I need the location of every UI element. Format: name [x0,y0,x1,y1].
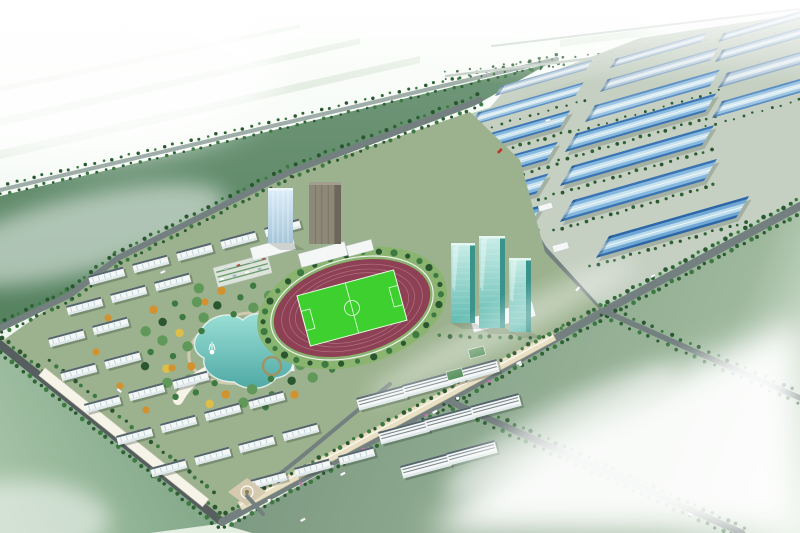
tree-icon [749,223,753,227]
highrise-shade [470,243,475,323]
tree-icon [290,472,293,475]
flower-tree-icon [299,482,302,485]
tree-icon [162,240,165,243]
tree-icon [283,494,286,497]
tree-icon [211,215,215,219]
tree-icon [705,125,707,127]
tree-icon [625,289,630,294]
tree-icon [769,213,773,217]
tree-icon [521,347,524,350]
tree-icon [95,171,98,174]
tree-icon [779,105,781,107]
tree-icon [688,237,691,240]
tree-icon [148,158,151,161]
tree-icon [162,451,165,454]
tree-icon [543,137,547,141]
tree-icon [367,429,371,433]
tree-icon [365,146,369,150]
tree-icon [576,101,578,103]
flower-tree-icon [487,380,490,383]
tree-icon [179,219,182,222]
tree-icon [604,304,607,307]
tree-icon [92,427,96,431]
tree-icon [373,105,377,109]
tree-icon [316,475,320,479]
tree-icon [69,407,73,411]
tree-icon [324,150,328,154]
tree-icon [619,322,623,326]
tree-icon [130,162,133,165]
highrise-roof [479,236,505,239]
tree-icon [475,92,479,96]
tree-icon [217,525,221,529]
autumn-tree-icon [92,348,99,355]
tree-icon [118,261,121,264]
tree-icon [423,114,426,117]
tree-icon [402,410,407,415]
tree-icon [38,302,41,305]
tree-icon [327,160,331,164]
tree-icon [212,490,216,494]
tree-icon [615,142,619,146]
tree-icon [236,190,240,194]
tree-icon [214,201,218,205]
tree-icon [50,307,54,311]
tree-icon [648,134,651,137]
tree-icon [469,96,472,99]
tree-icon [442,403,445,406]
tree-icon [694,152,697,155]
tree-icon [126,258,130,262]
tree-icon [468,394,471,397]
tree-icon [179,314,185,320]
tree-icon [579,315,582,318]
tree-icon [557,159,560,162]
tree-icon [52,181,55,184]
tree-icon [233,204,237,208]
tree-icon [380,422,385,427]
tree-icon [173,151,176,154]
tree-icon [336,464,340,468]
tree-icon [656,339,659,342]
tree-icon [87,421,91,425]
tree-icon [397,135,401,139]
tree-icon [391,100,394,103]
tree-icon [40,384,44,388]
tree-icon [103,435,107,439]
tree-icon [15,364,19,368]
tree-icon [121,248,125,252]
tree-icon [691,254,695,258]
tree-icon [465,110,469,114]
tree-icon [625,209,628,212]
tree-icon [304,483,307,486]
tree-icon [518,143,522,147]
tree-icon [128,153,131,156]
tree-icon [649,202,652,205]
tree-icon [578,329,582,333]
tree-icon [505,418,509,422]
tree-icon [743,242,746,245]
autumn-tree-icon [201,298,208,305]
tree-icon [575,154,578,157]
tree-icon [680,193,684,197]
tree-icon [313,120,316,123]
tree-icon [537,113,539,115]
tree-icon [427,124,430,127]
tree-icon [483,421,487,425]
tree-icon [512,146,515,149]
tree-icon [3,318,7,322]
tree-icon [29,318,33,322]
tree-icon [30,304,34,308]
tree-icon [67,168,70,171]
tree-icon [243,136,247,140]
tree-icon [74,411,78,415]
tree-icon [252,134,255,137]
tree-icon [189,224,193,228]
tree-icon [454,101,458,105]
tree-icon [795,213,799,217]
tree-icon [767,226,772,231]
tree-icon [761,215,766,220]
tree-icon [723,236,728,241]
tree-icon [80,416,85,421]
tree-icon [781,206,786,211]
tree-icon [497,416,500,419]
brown-tower-shade [335,182,341,244]
tree-icon [79,384,83,388]
tree-icon [237,518,241,522]
tree-icon [609,318,613,322]
tree-icon [71,297,74,300]
tree-icon [205,484,209,488]
tree-icon [555,106,558,109]
tree-icon [344,155,348,159]
tree-icon [717,241,720,244]
tree-icon [546,165,550,169]
tree-icon [136,151,140,155]
tree-icon [346,441,350,445]
tree-icon [583,99,586,102]
tree-icon [221,197,224,200]
tree-icon [30,360,34,364]
tree-icon [296,123,300,127]
tree-icon [219,211,223,215]
tree-icon [619,307,623,311]
tree-icon [416,404,419,407]
tree-icon [58,398,62,402]
tree-icon [417,96,420,99]
tree-icon [576,223,579,226]
tree-icon [316,455,321,460]
tree-icon [171,223,175,227]
tree-icon [69,177,72,180]
tree-icon [35,314,39,318]
tree-icon [473,107,476,110]
tree-icon [44,387,49,392]
tree-icon [552,193,555,196]
tree-icon [384,128,388,132]
tree-icon [64,302,67,305]
tree-icon [180,498,184,502]
tree-icon [356,109,359,112]
tree-icon [373,427,376,430]
tree-icon [154,242,158,246]
tree-icon [416,116,420,120]
tree-icon [302,159,306,163]
tree-icon [149,305,157,313]
tree-icon [241,200,245,204]
tree-icon [105,168,108,171]
tree-icon [585,220,589,224]
tree-icon [306,169,310,173]
tree-icon [64,288,67,291]
tree-icon [278,170,282,174]
tree-icon [395,415,398,418]
tree-icon [59,292,62,295]
tree-icon [782,220,785,223]
tree-icon [632,318,635,321]
roundabout-center [245,490,249,494]
tree-icon [619,294,622,297]
tree-icon [149,233,153,237]
tree-icon [593,180,596,183]
tree-icon [128,455,132,459]
tree-icon [163,145,167,149]
tree-icon [645,294,648,297]
tree-icon [689,190,692,193]
tree-icon [446,105,449,108]
tree-icon [474,389,479,394]
tree-icon [33,379,37,383]
tree-icon [157,230,160,233]
tree-icon [651,290,656,295]
tree-icon [619,175,622,178]
tree-icon [336,159,339,162]
tree-icon [157,478,161,482]
tree-icon [616,119,619,122]
flower-tree-icon [456,397,459,400]
tree-icon [338,445,343,450]
tree-icon [189,138,193,142]
tree-icon [711,183,714,186]
tree-icon [170,353,176,359]
tree-icon [89,270,93,274]
tree-icon [296,487,300,491]
tree-icon [204,515,209,520]
tree-icon [704,232,707,235]
tree-icon [609,212,613,216]
tree-icon [175,329,183,337]
tree-icon [370,134,374,138]
tree-icon [566,338,569,341]
glass-highrise-tower [451,243,475,323]
tree-icon [303,121,306,124]
tree-icon [670,241,674,245]
tree-icon [787,217,792,222]
tree-icon [313,168,316,171]
tree-icon [26,188,29,191]
tree-icon [11,314,15,318]
tree-icon [277,118,280,121]
tree-icon [692,354,696,358]
tree-icon [197,222,201,226]
tree-icon [263,505,266,508]
tree-icon [247,384,257,394]
tree-icon [9,360,14,365]
tree-icon [231,507,235,511]
tree-icon [279,127,282,130]
tree-icon [8,191,12,195]
tree-icon [22,370,26,374]
tree-icon [431,110,435,114]
tree-icon [462,396,466,400]
tree-icon [703,247,708,252]
tree-icon [703,262,706,265]
tree-icon [555,163,558,166]
horizon-haze [0,0,800,84]
tree-icon [653,164,656,167]
tree-icon [250,511,255,516]
tree-icon [147,349,153,355]
tree-icon [513,351,517,355]
tree-icon [544,197,547,200]
tree-icon [652,109,654,111]
tree-icon [699,95,702,98]
tree-icon [704,185,708,189]
tree-icon [187,362,195,370]
tree-icon [180,142,183,145]
tree-icon [78,175,81,178]
tree-icon [646,248,650,252]
tree-icon [261,189,265,193]
tree-icon [217,514,220,517]
tree-icon [438,107,442,111]
tree-icon [645,278,650,283]
tree-icon [211,380,217,386]
tree-icon [707,350,711,354]
tree-icon [429,396,433,400]
tree-icon [685,155,689,159]
tree-icon [78,279,82,283]
tree-icon [112,167,116,171]
tree-icon [441,408,444,411]
tree-icon [661,330,664,333]
glass-tower-body [268,188,293,243]
tree-icon [458,111,462,115]
tree-icon [398,90,402,94]
tree-icon [156,444,160,448]
tree-icon [491,126,493,128]
tree-icon [678,261,681,264]
tree-icon [320,108,324,112]
tree-icon [598,319,602,323]
tree-icon [500,429,504,433]
tree-icon [435,120,439,124]
tree-icon [735,244,739,248]
tree-icon [697,119,700,122]
tree-icon [276,498,280,502]
tree-icon [790,102,792,104]
tree-icon [568,130,572,134]
tree-icon [374,144,378,148]
tree-icon [639,135,643,139]
tree-icon [164,226,168,230]
tree-icon [718,89,720,91]
tree-icon [420,126,424,130]
tree-icon [328,107,331,110]
tree-icon [669,279,674,284]
tree-icon [400,121,403,124]
tree-icon [547,332,552,337]
tree-icon [45,297,49,301]
tree-icon [676,157,679,160]
tree-icon [272,172,276,176]
tree-icon [248,198,251,201]
tree-icon [347,143,351,147]
tree-icon [198,512,202,516]
tree-icon [685,352,688,355]
tree-icon [268,376,274,382]
tree-icon [407,88,410,91]
tree-icon [479,102,483,106]
tree-icon [751,111,753,113]
tree-icon [241,127,245,131]
tree-icon [723,253,726,256]
tree-icon [381,94,384,97]
tree-icon [689,342,692,345]
tree-icon [265,177,268,180]
tree-icon [631,285,635,289]
tree-icon [322,117,326,121]
tree-icon [84,163,88,167]
tree-icon [308,372,318,382]
tree-icon [711,243,715,247]
tree-icon [255,193,259,197]
tree-icon [553,344,558,349]
tree-icon [198,312,208,322]
tree-icon [635,168,639,172]
tree-icon [499,359,502,362]
tree-icon [560,340,564,344]
tree-icon [529,336,533,340]
tree-icon [671,265,675,269]
tree-icon [120,155,123,158]
tree-icon [237,294,243,300]
tree-icon [598,147,601,150]
tree-icon [508,371,511,374]
tree-icon [613,259,616,262]
tree-icon [540,352,544,356]
tree-icon [460,85,463,88]
tree-icon [566,157,570,161]
tree-icon [710,148,714,152]
tree-icon [683,258,688,263]
autumn-tree-icon [168,364,175,371]
tree-icon [36,363,41,368]
tree-icon [542,335,545,338]
tree-icon [191,147,195,151]
tree-icon [134,254,138,258]
tree-icon [366,107,369,110]
tree-icon [62,403,67,408]
tree-icon [293,114,297,118]
tree-icon [389,92,392,95]
tree-icon [582,153,585,156]
tree-icon [147,246,151,250]
tree-icon [691,97,693,99]
